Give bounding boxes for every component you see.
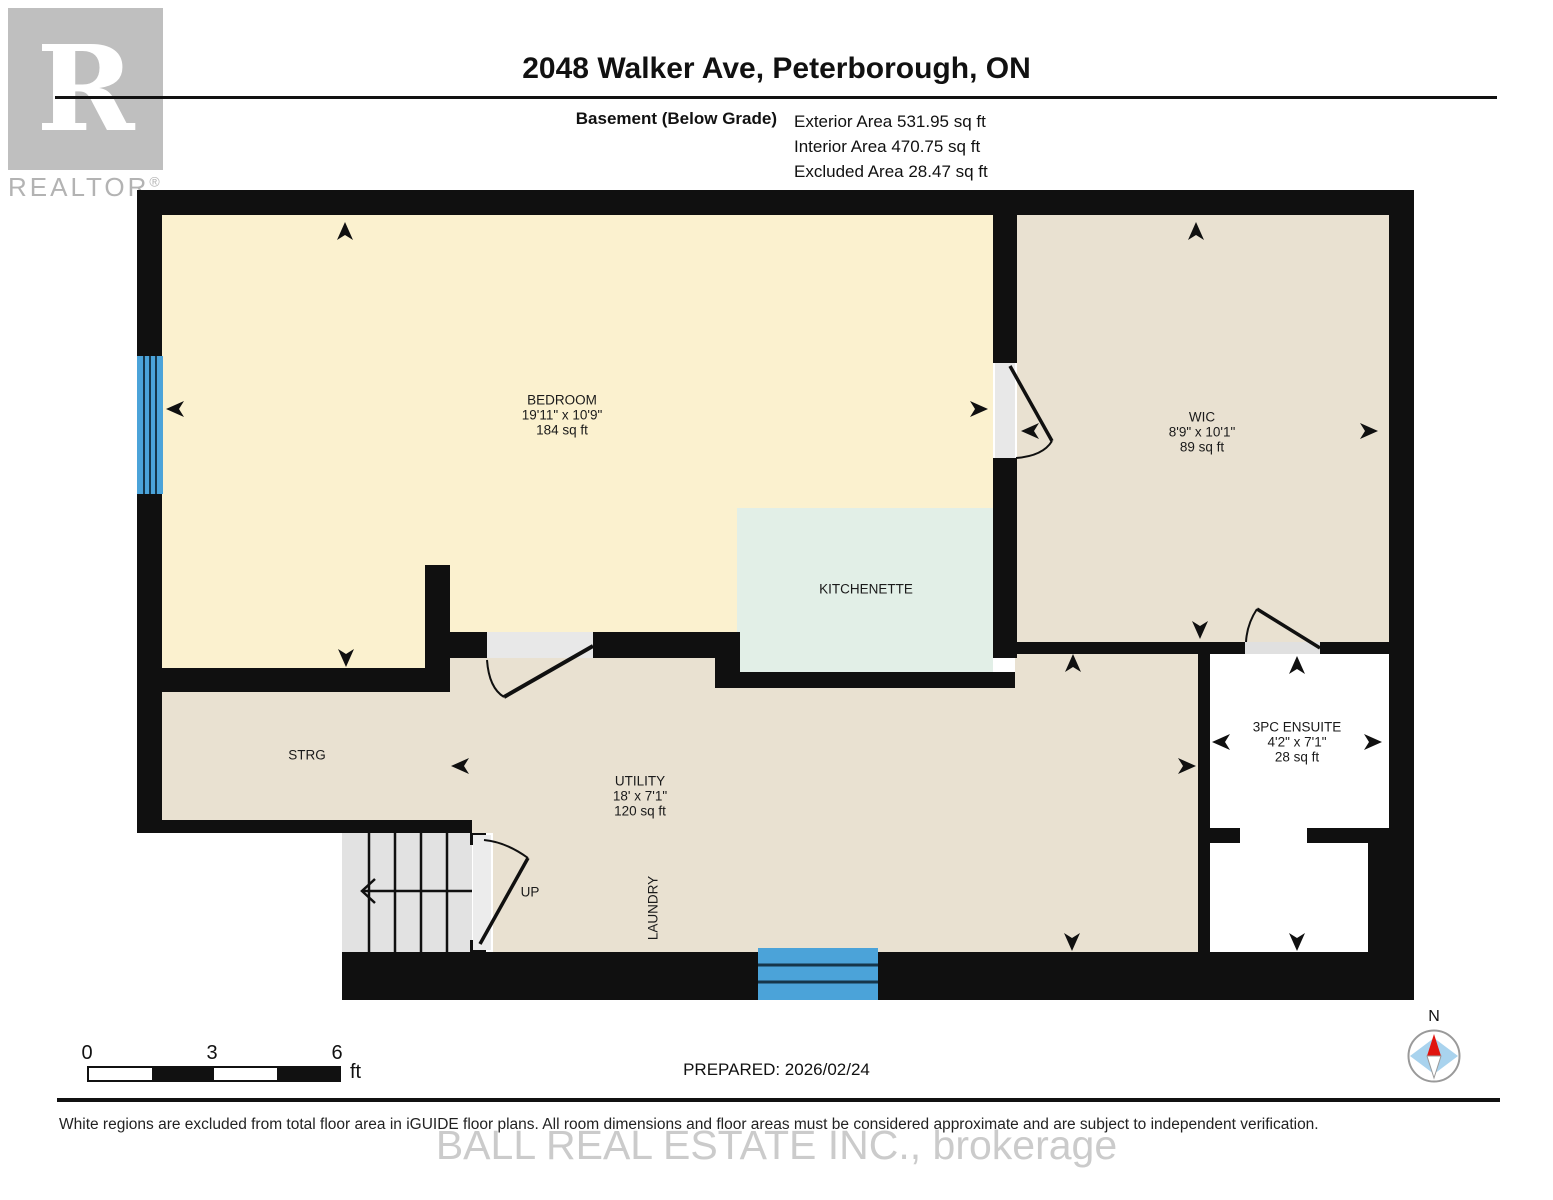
- room-name: KITCHENETTE: [819, 582, 913, 597]
- laundry-label: LAUNDRY: [646, 876, 661, 940]
- room-area: 120 sq ft: [613, 804, 667, 819]
- room-dimensions: 18' x 7'1": [613, 789, 667, 804]
- floor-plan-drawing: [0, 0, 1553, 1200]
- arrow-down-icon: [1289, 933, 1305, 951]
- arrow-up-icon: [1289, 656, 1305, 674]
- floorplan-page: R REALTOR® 2048 Walker Ave, Peterborough…: [0, 0, 1553, 1200]
- compass-icon: [1406, 1028, 1462, 1084]
- room-area: 28 sq ft: [1253, 750, 1342, 765]
- utility-storage-floor: [162, 653, 1198, 963]
- room-area: 184 sq ft: [522, 423, 603, 438]
- stairs: [342, 833, 472, 952]
- room-dimensions: 19'11" x 10'9": [522, 408, 603, 423]
- interior-area: Interior Area 470.75 sq ft: [794, 134, 988, 159]
- floor-label: Basement (Below Grade): [576, 109, 777, 129]
- ensuite-label: 3PC ENSUITE 4'2" x 7'1" 28 sq ft: [1253, 720, 1342, 765]
- utility-label: UTILITY 18' x 7'1" 120 sq ft: [613, 774, 667, 819]
- room-name: STRG: [288, 748, 326, 763]
- arrow-left-icon: [1212, 734, 1230, 750]
- room-name: 3PC ENSUITE: [1253, 720, 1342, 735]
- header-divider: [55, 96, 1497, 99]
- footer-divider: [57, 1098, 1500, 1102]
- storage-label: STRG: [288, 748, 326, 763]
- room-area: 89 sq ft: [1169, 440, 1236, 455]
- up-label: UP: [521, 885, 540, 900]
- room-name: UTILITY: [613, 774, 667, 789]
- window-bottom: [758, 948, 878, 1000]
- room-name: UP: [521, 885, 540, 900]
- excluded-area: Excluded Area 28.47 sq ft: [794, 159, 988, 184]
- area-summary: Exterior Area 531.95 sq ft Interior Area…: [794, 109, 988, 184]
- prepared-date: PREPARED: 2026/02/24: [0, 1060, 1553, 1080]
- page-title: 2048 Walker Ave, Peterborough, ON: [0, 52, 1553, 86]
- bedroom-label: BEDROOM 19'11" x 10'9" 184 sq ft: [522, 393, 603, 438]
- room-name: WIC: [1169, 410, 1236, 425]
- arrow-right-icon: [1364, 734, 1382, 750]
- wic-label: WIC 8'9" x 10'1" 89 sq ft: [1169, 410, 1236, 455]
- window-left: [137, 356, 163, 494]
- kitchenette-label: KITCHENETTE: [819, 582, 913, 597]
- exterior-area: Exterior Area 531.95 sq ft: [794, 109, 988, 134]
- room-name: BEDROOM: [522, 393, 603, 408]
- compass-north-label: N: [1428, 1008, 1440, 1026]
- room-dimensions: 8'9" x 10'1": [1169, 425, 1236, 440]
- disclaimer-text: White regions are excluded from total fl…: [59, 1116, 1319, 1134]
- room-dimensions: 4'2" x 7'1": [1253, 735, 1342, 750]
- room-name: LAUNDRY: [646, 876, 661, 940]
